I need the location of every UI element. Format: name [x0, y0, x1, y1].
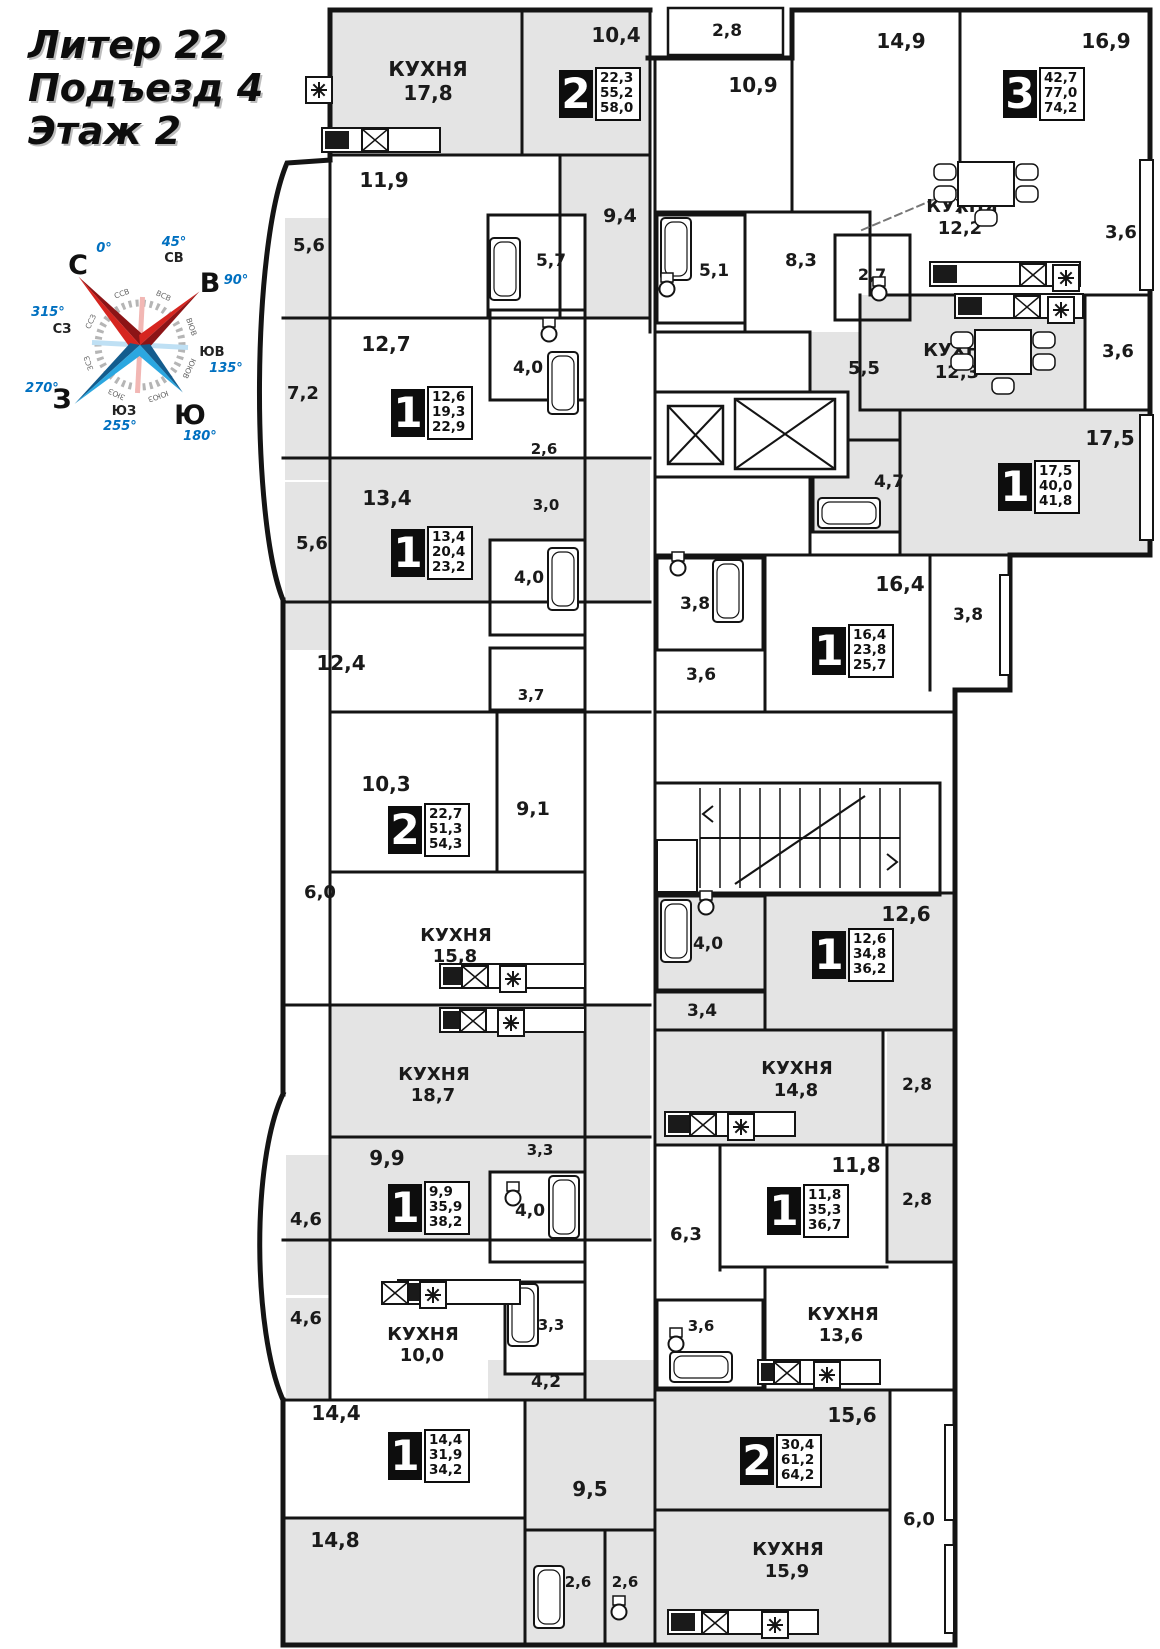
apartment-area-value: 16,4 — [853, 627, 886, 643]
plan-title: Литер 22Литер 22Подъезд 4Подъезд 4Этаж 2… — [27, 23, 265, 155]
apartment-area-value: 22,9 — [432, 419, 465, 435]
compass-ring-label: ЮЮВ — [181, 357, 198, 380]
room-area-label: 13,4 — [362, 486, 411, 510]
room-area-label: 13,6 — [819, 1325, 863, 1346]
apartment-badge: 112,619,322,9 — [391, 387, 472, 439]
room-area-label: 3,6 — [688, 1317, 715, 1335]
room-area-label: 3,6 — [1102, 341, 1134, 362]
sink-icon — [690, 1114, 716, 1136]
room-area-label: 14,8 — [310, 1528, 359, 1552]
room-area-label: 11,8 — [831, 1153, 880, 1177]
sink-icon — [460, 1010, 486, 1032]
room-area-label: 4,6 — [290, 1308, 322, 1329]
room-area-label: 5,1 — [699, 261, 729, 281]
apartment-area-value: 61,2 — [781, 1452, 814, 1468]
bathtub-icon — [490, 238, 520, 300]
stove-asterisk-icon — [498, 1010, 524, 1036]
apartment-badge: 342,777,074,2 — [1003, 68, 1084, 120]
apartment-area-value: 36,7 — [808, 1217, 841, 1233]
apartment-area-value: 58,0 — [600, 100, 633, 116]
stove-asterisk-icon — [814, 1362, 840, 1388]
bathtub-icon — [670, 1352, 732, 1382]
sink-icon — [382, 1282, 408, 1304]
kitchen-counter-icon — [668, 1610, 818, 1634]
room-area-label: КУХНЯ — [387, 1324, 458, 1345]
apartment-badge: 114,431,934,2 — [388, 1430, 469, 1482]
room-area-label: 14,9 — [876, 29, 925, 53]
compass-ring-label: ССЗ — [83, 313, 98, 331]
room-area-label: 3,6 — [1105, 222, 1137, 243]
compass-degree-label: 315° — [31, 305, 65, 320]
apartment-badge: 112,634,836,2 — [812, 929, 893, 981]
stove-asterisk-icon — [420, 1282, 446, 1308]
toilet-icon — [542, 318, 557, 342]
room-area-label: 4,0 — [514, 568, 544, 588]
apartment-area-value: 40,0 — [1039, 478, 1072, 494]
apartment-area-value: 35,3 — [808, 1202, 841, 1218]
compass-ring-label: ССВ — [113, 287, 131, 301]
apartment-area-value: 55,2 — [600, 85, 633, 101]
room-area-label: КУХНЯ — [420, 925, 491, 946]
bathtub-icon — [661, 218, 691, 280]
room-area-label: 2,8 — [902, 1190, 932, 1210]
bathtub-icon — [713, 560, 743, 622]
apartment-area-value: 20,4 — [432, 544, 465, 560]
room-area-label: 3,8 — [953, 605, 983, 625]
room-area-label: 12,7 — [361, 332, 410, 356]
toilet-icon — [660, 273, 675, 297]
apartment-badge: 117,540,041,8 — [998, 461, 1079, 513]
apartment-area-value: 13,4 — [432, 529, 465, 545]
room-area-label: 5,7 — [536, 251, 566, 271]
plan-title-line: Подъезд 4 — [28, 66, 263, 110]
compass-degree-label: 180° — [183, 429, 217, 444]
room-area-label: 6,3 — [670, 1224, 702, 1245]
stove-asterisk-icon — [306, 77, 332, 103]
apartment-area-value: 31,9 — [429, 1447, 462, 1463]
room-area-label: 10,9 — [728, 73, 777, 97]
apartment-area-value: 22,3 — [600, 70, 633, 86]
apartment-area-value: 38,2 — [429, 1214, 462, 1230]
apartment-area-value: 23,8 — [853, 642, 886, 658]
room-area-label: 2,8 — [712, 21, 742, 41]
toilet-icon — [671, 552, 686, 576]
apartment-rooms-count: 3 — [1005, 69, 1034, 118]
room-area-label: 16,4 — [875, 572, 924, 596]
apartment-badge: 111,835,336,7 — [767, 1185, 848, 1237]
compass-ring-label: ВСВ — [155, 288, 173, 303]
apartment-area-value: 42,7 — [1044, 70, 1077, 86]
bathtub-icon — [818, 498, 880, 528]
compass-degree-label: 270° — [25, 381, 59, 396]
apartment-area-value: 36,2 — [853, 961, 886, 977]
room-area-label: 4,7 — [874, 472, 904, 492]
stove-asterisk-icon — [1048, 297, 1074, 323]
compass-cardinal-label: В — [200, 268, 221, 299]
bathtub-icon — [548, 352, 578, 414]
stove-asterisk-icon — [1053, 265, 1079, 291]
room-area-label: 3,8 — [680, 594, 710, 614]
apartment-area-value: 64,2 — [781, 1467, 814, 1483]
compass-degree-label: 0° — [96, 241, 112, 256]
room-area-label: 3,7 — [518, 686, 545, 704]
room-area-label: 9,9 — [369, 1146, 404, 1170]
bathtub-icon — [661, 900, 691, 962]
room-area-label: 2,6 — [612, 1573, 639, 1591]
apartment-area-value: 34,2 — [429, 1462, 462, 1478]
apartment-rooms-count: 2 — [742, 1436, 771, 1485]
room-area-label: 4,6 — [290, 1209, 322, 1230]
bathtub-icon — [534, 1566, 564, 1628]
room-area-label: 10,0 — [400, 1345, 444, 1366]
apartment-area-value: 74,2 — [1044, 100, 1077, 116]
compass-subdirection-label: СВ — [164, 251, 183, 266]
room-area-label: 11,9 — [359, 168, 408, 192]
apartment-area-value: 9,9 — [429, 1184, 453, 1200]
apartment-badge: 116,423,825,7 — [812, 625, 893, 677]
room-area-label: 5,6 — [296, 533, 328, 554]
apartment-area-value: 11,8 — [808, 1187, 841, 1203]
stove-asterisk-icon — [762, 1612, 788, 1638]
apartment-area-value: 30,4 — [781, 1437, 814, 1453]
compass-ring-label: ЗСЗ — [82, 355, 96, 372]
compass-degree-label: 135° — [209, 361, 243, 376]
apartment-area-value: 35,9 — [429, 1199, 462, 1215]
apartment-rooms-count: 1 — [390, 1183, 419, 1232]
apartment-area-value: 54,3 — [429, 836, 462, 852]
apartment-badge: 19,935,938,2 — [388, 1182, 469, 1234]
apartment-area-value: 12,6 — [432, 389, 465, 405]
apartment-rooms-count: 1 — [1000, 462, 1029, 511]
plan-title-line: Литер 22 — [27, 23, 227, 67]
room-area-label: 8,3 — [785, 250, 817, 271]
apartment-area-value: 23,2 — [432, 559, 465, 575]
sink-icon — [774, 1362, 800, 1384]
apartment-rooms-count: 1 — [814, 626, 843, 675]
room-area-label: 7,2 — [287, 383, 319, 404]
sink-icon — [462, 966, 488, 988]
bathtub-icon — [549, 1176, 579, 1238]
room-area-label: 4,2 — [531, 1372, 561, 1392]
room-area-label: 3,3 — [538, 1316, 565, 1334]
room-area-label: КУХНЯ — [761, 1058, 832, 1079]
room-area-label: 14,8 — [774, 1080, 818, 1101]
room-area-label: 18,7 — [411, 1085, 455, 1106]
apartment-rooms-count: 2 — [390, 805, 419, 854]
room-area-label: 2,6 — [565, 1573, 592, 1591]
compass-cardinal-label: С — [68, 250, 88, 281]
apartment-area-value: 14,4 — [429, 1432, 462, 1448]
stove-asterisk-icon — [728, 1114, 754, 1140]
room-area-label: 16,9 — [1081, 29, 1130, 53]
apartment-rooms-count: 1 — [390, 1431, 419, 1480]
room-area-label: 10,4 — [591, 23, 640, 47]
apartment-area-value: 34,8 — [853, 946, 886, 962]
staircase — [655, 783, 940, 895]
apartment-area-value: 25,7 — [853, 657, 886, 673]
compass-ring-label: ЮЮЗ — [147, 389, 170, 405]
sink-icon — [1020, 264, 1046, 286]
room-area-label: 4,0 — [513, 358, 543, 378]
toilet-icon — [669, 1328, 684, 1352]
room-area-label: КУХНЯ — [388, 57, 467, 81]
room-area-label: 17,5 — [1085, 426, 1134, 450]
apartment-area-value: 22,7 — [429, 806, 462, 822]
elevator-shafts — [655, 392, 848, 477]
apartment-rooms-count: 1 — [814, 930, 843, 979]
compass-subdirection-label: ЮВ — [199, 345, 224, 360]
apartment-badge: 222,751,354,3 — [388, 804, 469, 856]
apartment-rooms-count: 1 — [393, 528, 422, 577]
room-area-label: 5,6 — [293, 235, 325, 256]
toilet-icon — [699, 891, 714, 915]
room-area-label: 6,0 — [903, 1509, 935, 1530]
apartment-rooms-count: 2 — [561, 69, 590, 118]
sink-icon — [362, 129, 388, 151]
apartment-area-value: 41,8 — [1039, 493, 1072, 509]
floor-plan-page: КУХНЯ17,810,42,810,914,916,93,6КУХНЯ12,2… — [0, 0, 1160, 1649]
room-area-label: 4,0 — [693, 934, 723, 954]
room-area-label: 12,6 — [881, 902, 930, 926]
room-area-label: 4,0 — [515, 1201, 545, 1221]
compass-degree-label: 255° — [103, 419, 137, 434]
kitchen-counter-icon — [398, 1280, 520, 1304]
room-area-label: 14,4 — [311, 1401, 360, 1425]
apartment-area-value: 51,3 — [429, 821, 462, 837]
apartment-rooms-count: 1 — [393, 388, 422, 437]
room-area-label: 12,4 — [316, 651, 365, 675]
compass-ring-label: ВЮВ — [184, 317, 199, 337]
compass-rose: СВЮЗ0°45°90°135°180°255°270°315°СВЮВЮЗСЗ… — [13, 223, 248, 451]
apartment-area-value: 17,5 — [1039, 463, 1072, 479]
room-area-label: 9,4 — [603, 205, 637, 227]
compass-cardinal-label: Ю — [174, 400, 206, 431]
room-area-label: 15,6 — [827, 1403, 876, 1427]
room-area-label: КУХНЯ — [398, 1064, 469, 1085]
apartment-badge: 113,420,423,2 — [391, 527, 472, 579]
room-area-label: 15,9 — [765, 1561, 809, 1582]
floor-plan-svg: КУХНЯ17,810,42,810,914,916,93,6КУХНЯ12,2… — [0, 0, 1160, 1649]
sink-icon — [1014, 296, 1040, 318]
room-area-label: 17,8 — [403, 81, 452, 105]
stove-asterisk-icon — [500, 966, 526, 992]
compass-subdirection-label: СЗ — [53, 322, 72, 337]
toilet-icon — [872, 277, 887, 301]
room-area-label: 3,0 — [533, 496, 560, 514]
bathtub-icon — [548, 548, 578, 610]
room-area-label: 2,6 — [531, 440, 558, 458]
room-area-label: 9,1 — [516, 798, 550, 820]
apartment-area-value: 77,0 — [1044, 85, 1077, 101]
plan-title-line: Этаж 2 — [28, 109, 181, 153]
room-area-label: 5,5 — [848, 358, 880, 379]
apartment-area-value: 19,3 — [432, 404, 465, 420]
apartment-area-value: 12,6 — [853, 931, 886, 947]
toilet-icon — [612, 1596, 627, 1620]
apartment-badge: 230,461,264,2 — [740, 1435, 821, 1487]
room-area-label: КУХНЯ — [752, 1539, 823, 1560]
room-area-label: 2,8 — [902, 1075, 932, 1095]
toilet-icon — [506, 1182, 521, 1206]
compass-subdirection-label: ЮЗ — [112, 404, 137, 419]
room-area-label: 3,3 — [527, 1141, 554, 1159]
room-area-label: 3,4 — [687, 1001, 717, 1021]
apartment-rooms-count: 1 — [769, 1186, 798, 1235]
apartment-badge: 222,355,258,0 — [559, 68, 640, 120]
room-area-label: 6,0 — [304, 882, 336, 903]
sink-icon — [702, 1612, 728, 1634]
compass-degree-label: 90° — [224, 273, 249, 288]
compass-degree-label: 45° — [161, 235, 187, 250]
room-area-label: 3,6 — [686, 665, 716, 685]
room-area-label: 10,3 — [361, 772, 410, 796]
room-area-label: 9,5 — [572, 1477, 607, 1501]
compass-ring-label: ЗЮЗ — [106, 386, 126, 402]
room-area-label: КУХНЯ — [807, 1304, 878, 1325]
